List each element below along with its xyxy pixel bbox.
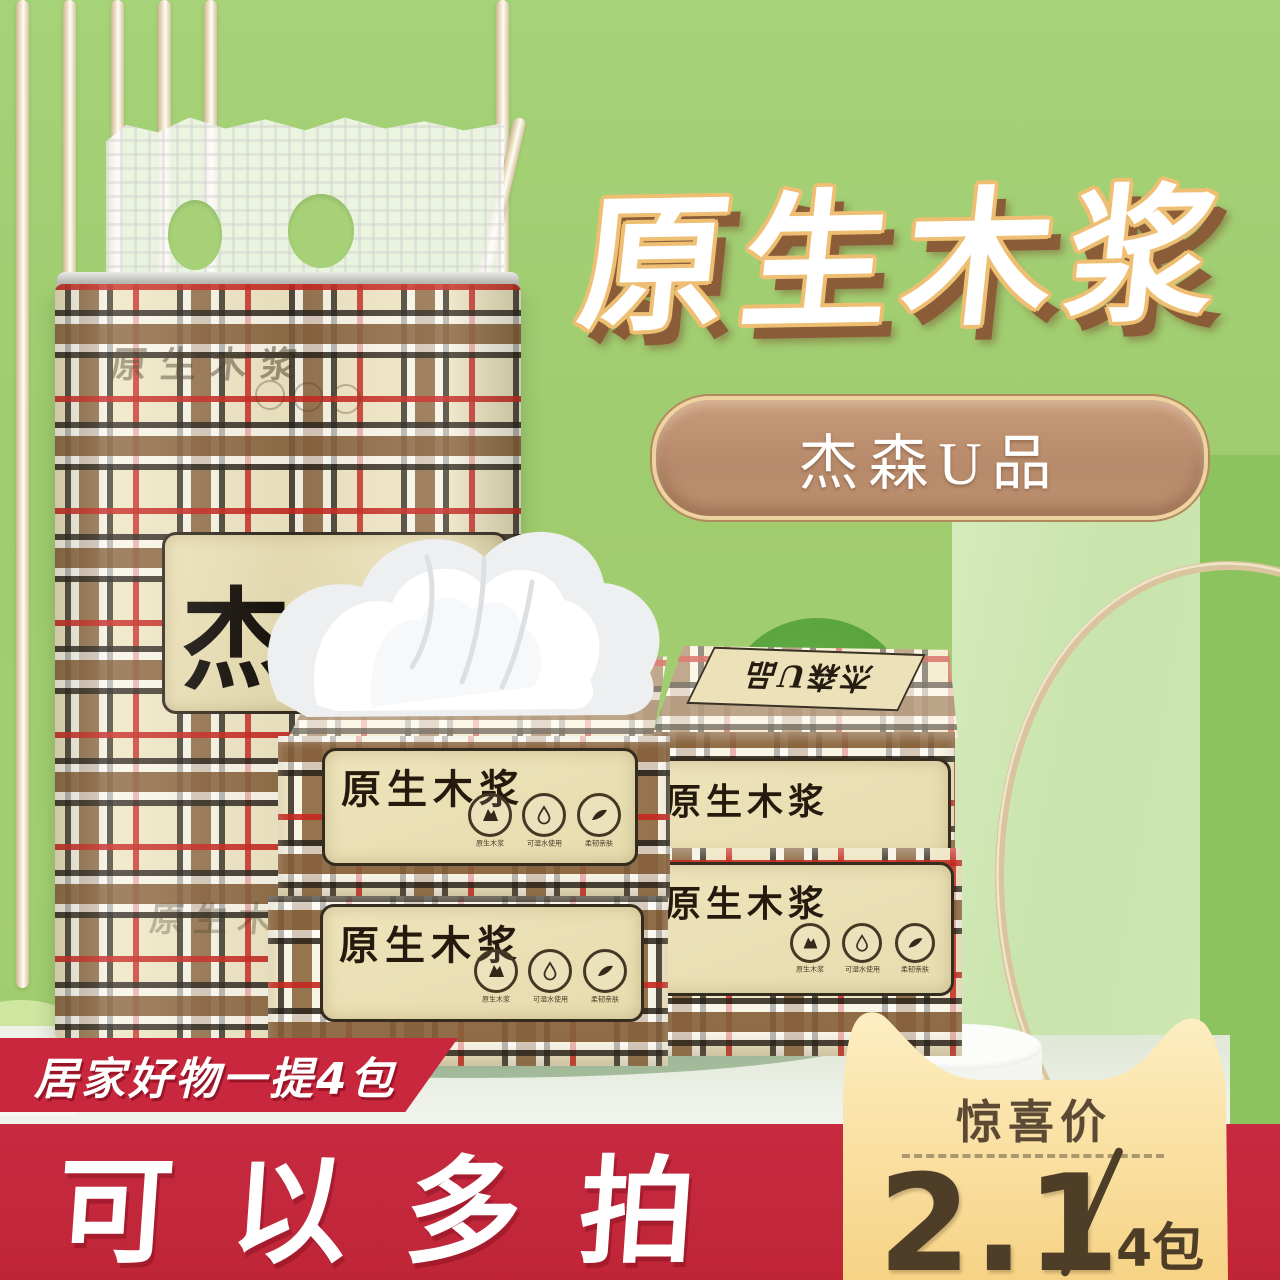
tissue-box-label: 原生木浆 [640, 758, 951, 860]
water-drop-icon [842, 923, 882, 963]
wood-pulp-icon [468, 793, 512, 837]
box-label-title: 原生木浆 [665, 773, 829, 825]
price-value: 2.1 [878, 1146, 1121, 1280]
pack-watermark-circle [255, 380, 285, 410]
pack-plastic-handle [106, 112, 504, 296]
wood-pulp-icon [474, 949, 518, 993]
pack-watermark: 原生木浆 [108, 336, 313, 388]
icon-group: 可湿水使用 [522, 793, 567, 849]
icon-caption: 柔韧亲肤 [591, 997, 619, 1004]
pulled-tissue [222, 495, 692, 735]
icon-group: 原生木浆 [468, 793, 512, 849]
icon-caption: 柔韧亲肤 [901, 967, 929, 974]
soft-touch-icon [577, 793, 621, 837]
water-drop-icon [528, 949, 572, 993]
box-label-title: 原生木浆 [665, 875, 829, 927]
promo-ribbon: 居家好物一提4包 [0, 1038, 458, 1112]
promo-ribbon-text: 居家好物一提4包 [34, 1043, 397, 1107]
box-top-strip-text: 杰森U品 [735, 655, 876, 703]
box-label-icons: 原生木浆 可湿水使用 柔韧亲肤 [790, 923, 935, 975]
handle-hole [288, 194, 354, 268]
icon-group: 柔韧亲肤 [895, 923, 935, 975]
icon-caption: 原生木浆 [482, 997, 510, 1004]
icon-group: 柔韧亲肤 [583, 949, 627, 1005]
pack-watermark-circle [293, 382, 323, 412]
box-label-icons: 原生木浆 可湿水使用 柔韧亲肤 [468, 793, 621, 849]
promo-poster: 原生木浆 杰森 原生木浆 杰森U品 原生木浆 原生木浆 原生木浆 [0, 0, 1280, 1280]
soft-touch-icon [895, 923, 935, 963]
price-unit: 4包 [1116, 1206, 1204, 1280]
icon-group: 可湿水使用 [528, 949, 573, 1005]
wood-pulp-icon [790, 923, 830, 963]
promo-headline: 可以多拍 [52, 1118, 760, 1280]
icon-caption: 柔韧亲肤 [585, 841, 613, 848]
icon-caption: 可湿水使用 [527, 841, 562, 848]
handle-hole [168, 200, 222, 270]
brand-badge: 杰森U品 [652, 396, 1208, 520]
icon-caption: 原生木浆 [796, 967, 824, 974]
hero-title: 原生木浆 [570, 134, 1242, 360]
tissue-box-label: 原生木浆 原生木浆 可湿水使用 柔韧亲肤 [320, 904, 644, 1022]
soft-touch-icon [583, 949, 627, 993]
icon-caption: 可湿水使用 [845, 967, 880, 974]
icon-group: 原生木浆 [790, 923, 830, 975]
brand-badge-text: 杰森U品 [798, 415, 1061, 502]
pack-watermark-circle [331, 384, 361, 414]
icon-group: 原生木浆 [474, 949, 518, 1005]
tissue-box-label: 原生木浆 原生木浆 可湿水使用 柔韧亲肤 [322, 748, 638, 866]
tissue-box-label: 原生木浆 原生木浆 可湿水使用 柔韧亲肤 [636, 862, 954, 996]
icon-caption: 原生木浆 [476, 841, 504, 848]
icon-group: 柔韧亲肤 [577, 793, 621, 849]
icon-group: 可湿水使用 [840, 923, 885, 975]
icon-caption: 可湿水使用 [533, 997, 568, 1004]
water-drop-icon [522, 793, 566, 837]
box-label-icons: 原生木浆 可湿水使用 柔韧亲肤 [474, 949, 627, 1005]
price-label: 惊喜价 [898, 1086, 1170, 1152]
box-top-strip-label: 杰森U品 [686, 647, 926, 711]
